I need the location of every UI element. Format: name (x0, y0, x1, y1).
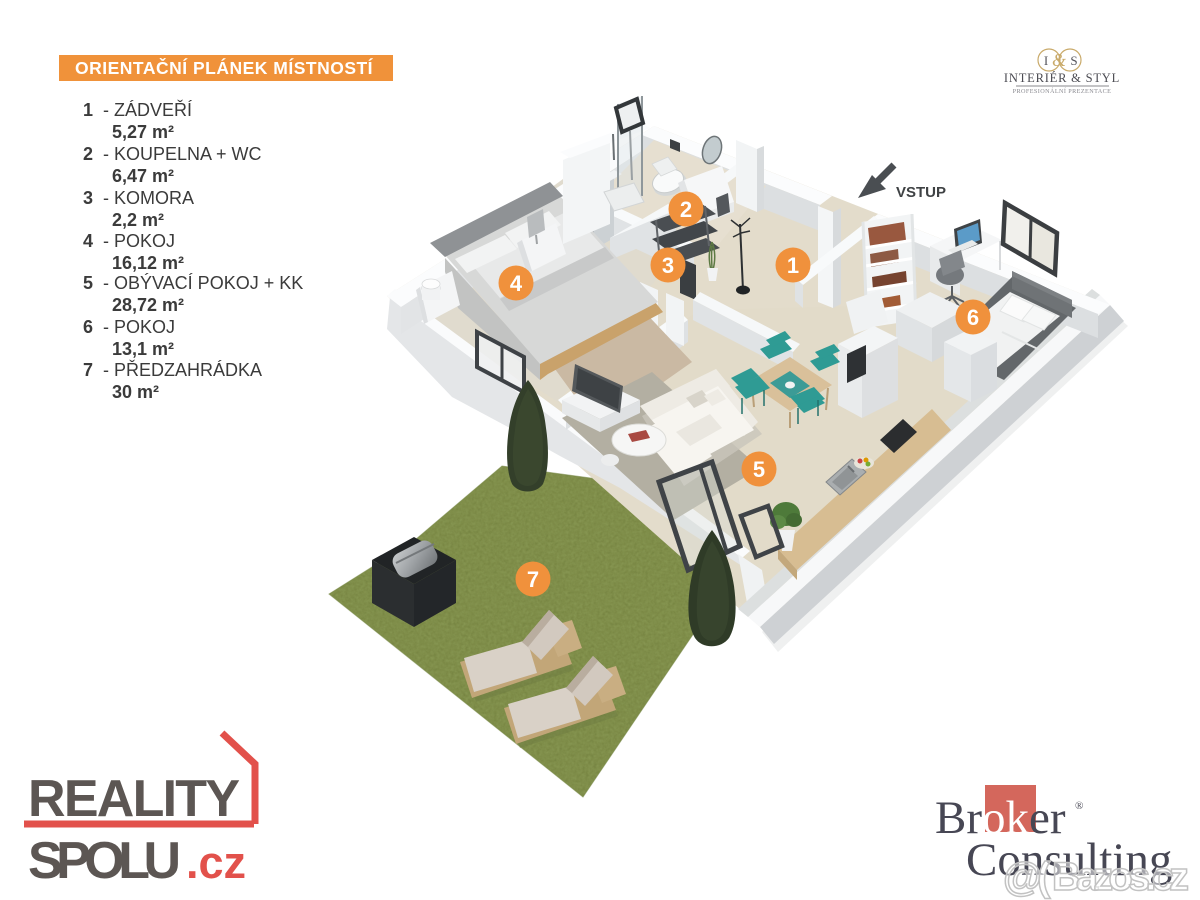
svg-text:.cz: .cz (186, 837, 246, 888)
svg-text:PROFESIONÁLNÍ PREZENTACE: PROFESIONÁLNÍ PREZENTACE (1013, 87, 1112, 95)
svg-text:®: ® (1075, 800, 1083, 812)
svg-text:5: 5 (753, 457, 765, 482)
svg-text:2,2 m²: 2,2 m² (112, 210, 164, 230)
svg-text:- POKOJ: - POKOJ (103, 317, 175, 337)
svg-text:I: I (1044, 53, 1048, 68)
svg-text:@( Bazos.cz: @( Bazos.cz (1003, 855, 1189, 899)
svg-text:16,12 m²: 16,12 m² (112, 253, 184, 273)
svg-text:2: 2 (83, 144, 93, 164)
svg-text:6,47 m²: 6,47 m² (112, 166, 174, 186)
svg-text:VSTUP: VSTUP (896, 184, 946, 201)
svg-text:- POKOJ: - POKOJ (103, 231, 175, 251)
svg-text:S: S (1070, 53, 1077, 68)
svg-text:4: 4 (83, 231, 93, 251)
svg-text:1: 1 (83, 100, 93, 120)
svg-text:- OBÝVACÍ POKOJ + KK: - OBÝVACÍ POKOJ + KK (103, 273, 303, 293)
svg-text:5,27 m²: 5,27 m² (112, 122, 174, 142)
svg-text:ORIENTAČNÍ PLÁNEK MÍSTNOSTÍ: ORIENTAČNÍ PLÁNEK MÍSTNOSTÍ (75, 57, 374, 78)
svg-text:SPOLU: SPOLU (28, 832, 181, 890)
svg-text:7: 7 (527, 567, 539, 592)
svg-text:7: 7 (83, 360, 93, 380)
svg-text:13,1 m²: 13,1 m² (112, 339, 174, 359)
svg-text:REALITY: REALITY (28, 770, 240, 828)
svg-text:4: 4 (510, 271, 523, 296)
svg-text:- PŘEDZAHRÁDKA: - PŘEDZAHRÁDKA (103, 360, 262, 380)
svg-text:- KOUPELNA + WC: - KOUPELNA + WC (103, 144, 262, 164)
svg-text:- KOMORA: - KOMORA (103, 188, 194, 208)
svg-text:2: 2 (680, 197, 692, 222)
svg-text:6: 6 (83, 317, 93, 337)
svg-text:3: 3 (83, 188, 93, 208)
svg-text:1: 1 (787, 253, 799, 278)
svg-text:3: 3 (662, 253, 674, 278)
svg-text:28,72 m²: 28,72 m² (112, 295, 184, 315)
svg-text:5: 5 (83, 273, 93, 293)
svg-text:30 m²: 30 m² (112, 382, 159, 402)
svg-text:6: 6 (967, 305, 979, 330)
svg-text:INTERIÉR & STYL: INTERIÉR & STYL (1004, 71, 1120, 85)
svg-text:&: & (1052, 50, 1066, 70)
svg-text:- ZÁDVEŘÍ: - ZÁDVEŘÍ (103, 100, 192, 120)
